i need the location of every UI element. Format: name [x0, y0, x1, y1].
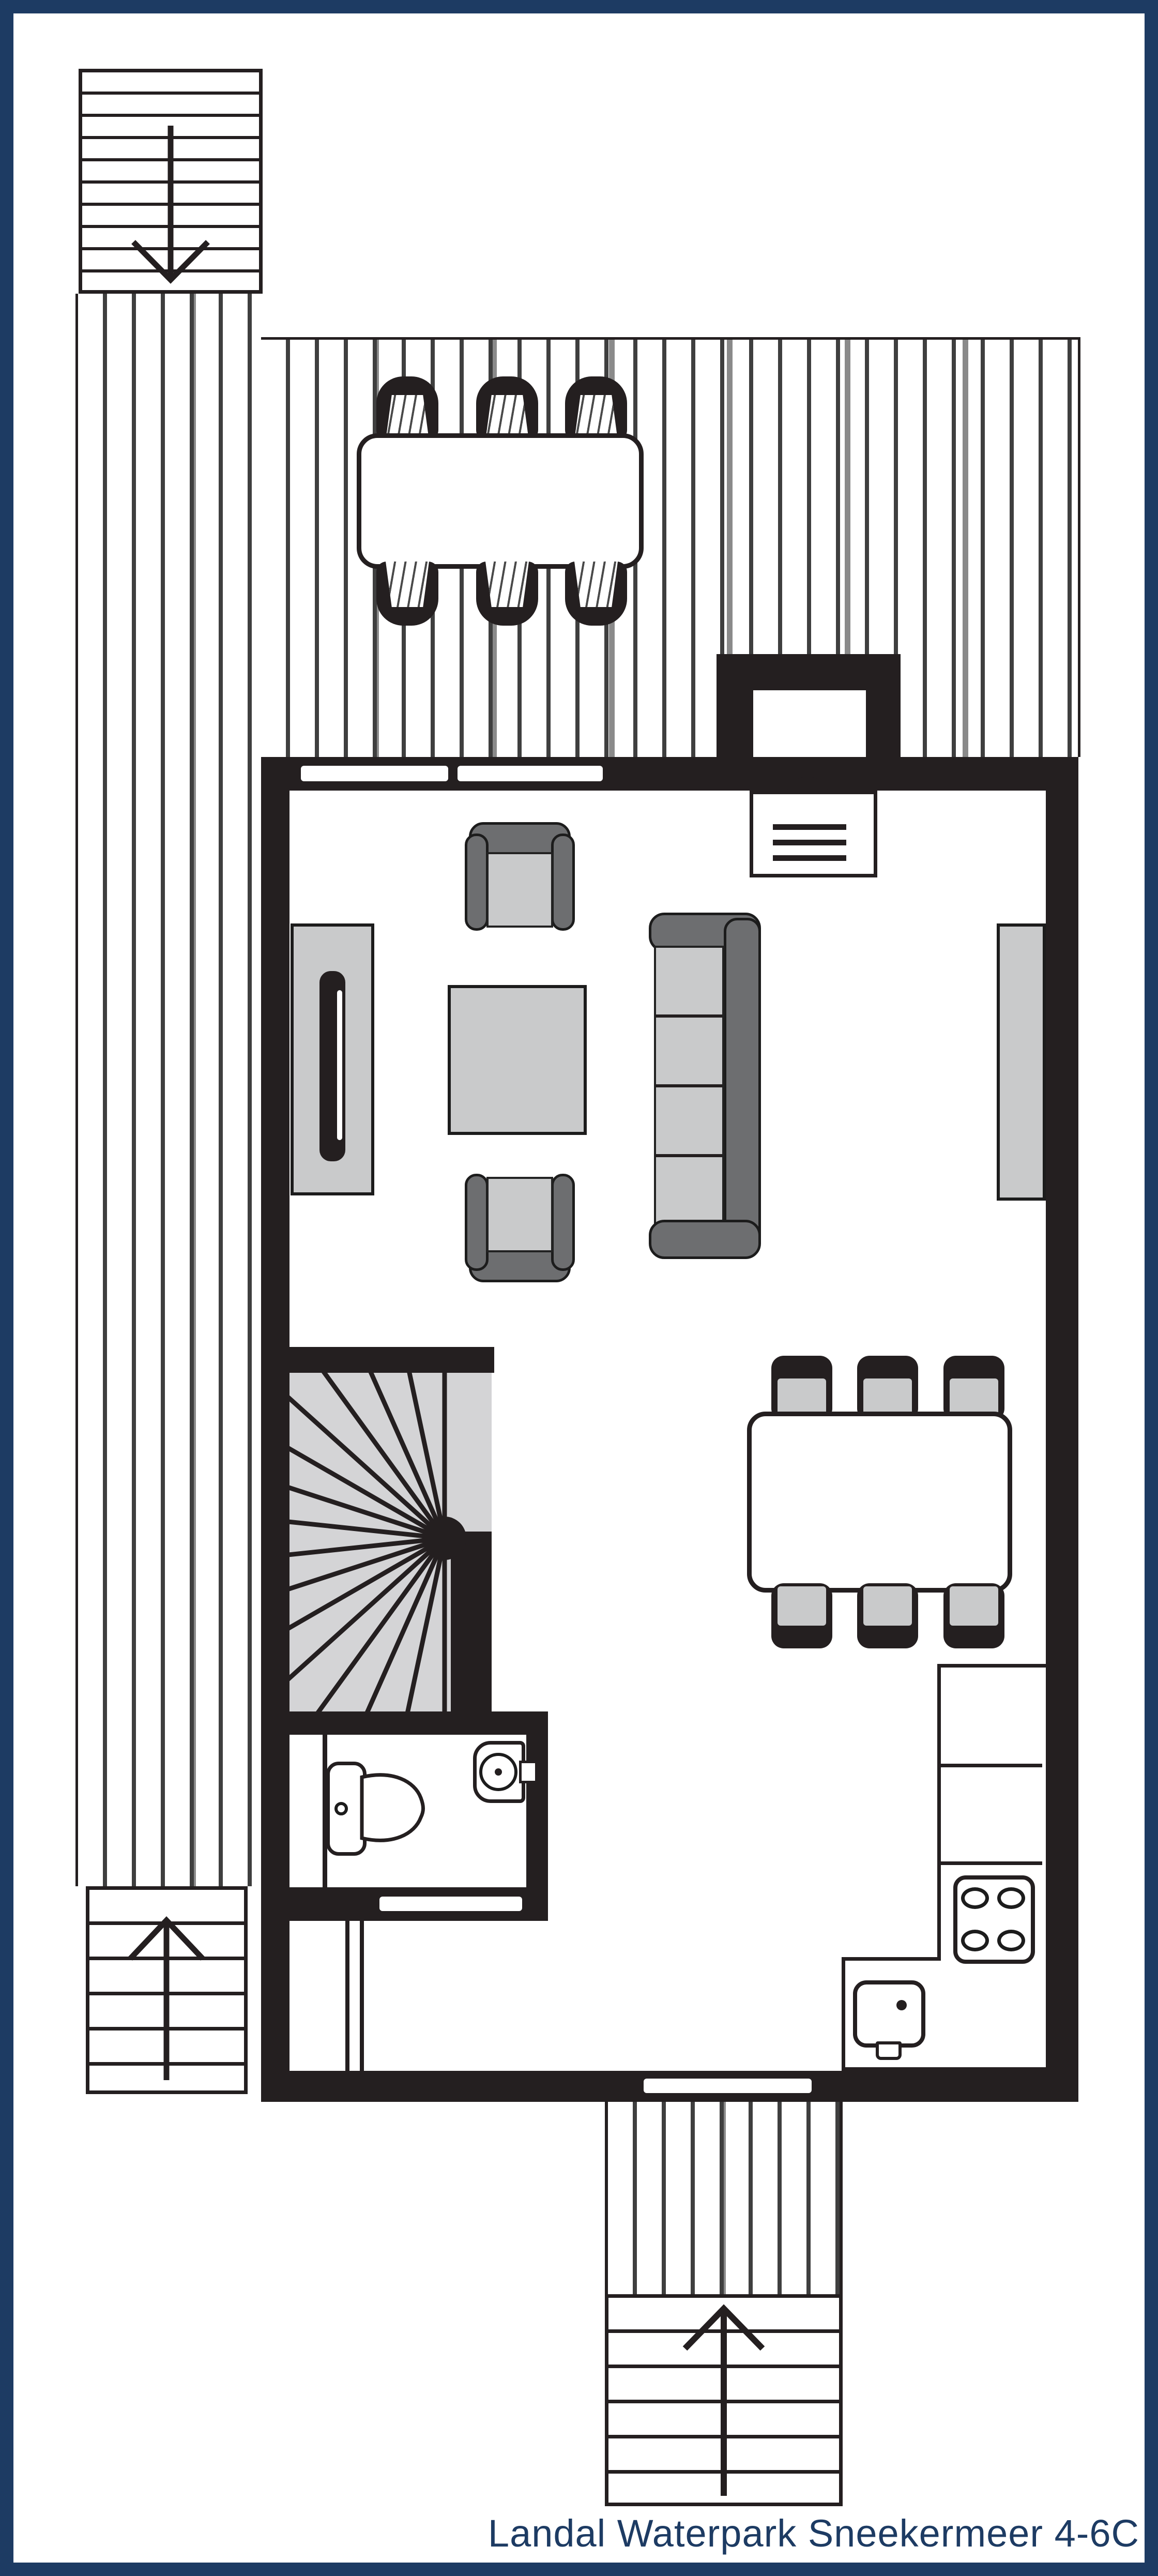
armchair-arm	[465, 1174, 489, 1271]
door-leaf-line	[360, 1921, 364, 2071]
armchair-arm	[551, 1174, 575, 1271]
sofa-armrest	[649, 1220, 761, 1259]
sideboard	[997, 923, 1046, 1201]
armchair	[465, 822, 575, 931]
bottom-entry-deck	[605, 2102, 843, 2294]
heater-grille-line	[773, 855, 846, 861]
heater-unit	[750, 791, 877, 877]
sink-tap	[876, 2041, 902, 2060]
heater-grille-line	[773, 840, 846, 845]
stove-burner	[997, 1930, 1025, 1951]
armchair-seat	[486, 1177, 553, 1252]
window-top-2	[458, 766, 603, 781]
entry-door-bottom	[644, 2079, 812, 2093]
outdoor-chair	[565, 376, 627, 441]
chair-seat	[863, 1586, 912, 1626]
arrow-down-icon	[79, 69, 263, 294]
stove	[953, 1875, 1035, 1964]
sofa	[649, 913, 761, 1259]
door-leaf-line	[345, 1921, 349, 2071]
washbasin-tap	[519, 1761, 538, 1783]
dining-chair	[943, 1583, 1004, 1648]
chair-seat	[386, 562, 429, 607]
counter-divider	[937, 1764, 1042, 1767]
sink-drain	[896, 2000, 907, 2010]
outdoor-dining-table	[357, 433, 644, 569]
sofa-cushions	[654, 946, 724, 1226]
stove-burner	[961, 1887, 989, 1909]
tv-screen-highlight	[337, 990, 342, 1140]
counter-seam-cover	[935, 1962, 947, 2067]
kitchen-sink	[853, 1980, 925, 2048]
stove-burner	[961, 1930, 989, 1951]
bathroom-door	[379, 1897, 522, 1911]
outdoor-chair	[476, 562, 538, 626]
armchair-seat	[486, 852, 553, 928]
armchair	[465, 1174, 575, 1282]
dining-chair	[857, 1583, 918, 1648]
arrow-up-icon-bottom	[605, 2294, 843, 2506]
dining-chair	[771, 1583, 832, 1648]
window-top-1	[301, 766, 448, 781]
toilet-flush-button	[334, 1802, 348, 1815]
chair-seat	[574, 562, 618, 607]
washbasin-drain	[495, 1768, 502, 1776]
entry-porch-floor	[753, 690, 866, 757]
chair-seat	[485, 562, 529, 607]
outdoor-chair	[565, 562, 627, 626]
outdoor-chair	[476, 376, 538, 441]
counter-divider	[937, 1861, 1042, 1865]
stove-burner	[997, 1887, 1025, 1909]
wall-right	[1046, 757, 1078, 2102]
outdoor-chair	[376, 376, 438, 441]
toilet-bowl	[357, 1766, 434, 1851]
arrow-up-icon-left	[86, 1886, 248, 2094]
left-terrace-deck	[75, 294, 261, 1886]
coffee-table	[448, 985, 587, 1135]
floor-plan: Landal Waterpark Sneekermeer 4-6C	[0, 0, 1158, 2576]
outdoor-chair	[376, 562, 438, 626]
armchair-arm	[465, 834, 489, 931]
chair-seat	[950, 1586, 998, 1626]
dining-table	[747, 1412, 1012, 1593]
bathroom-wall-top	[261, 1711, 548, 1735]
armchair-arm	[551, 834, 575, 931]
heater-grille-line	[773, 824, 846, 830]
plan-caption: Landal Waterpark Sneekermeer 4-6C	[488, 2511, 1139, 2555]
chair-seat	[778, 1586, 826, 1626]
spiral-stairs-top-wall	[289, 1347, 494, 1373]
spiral-staircase	[289, 1373, 492, 1711]
sofa-back	[724, 918, 761, 1254]
kitchen-counter-vertical	[937, 1664, 1046, 2071]
